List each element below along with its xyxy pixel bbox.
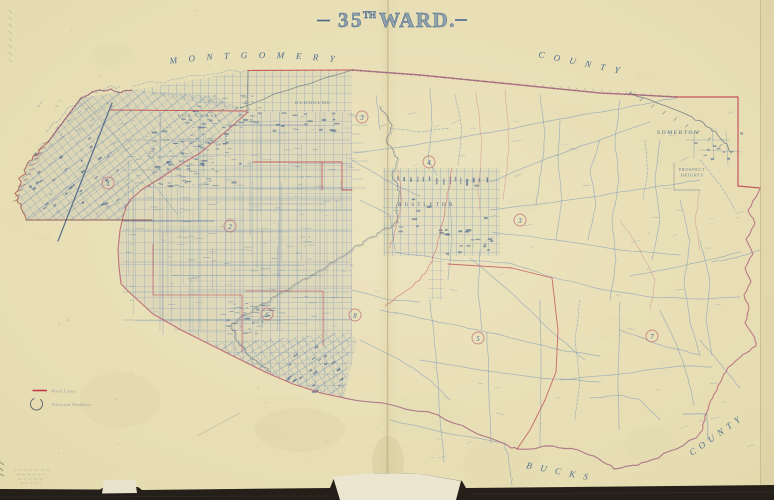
svg-text:SOMERTON: SOMERTON xyxy=(657,130,700,136)
svg-text:Ward Lines: Ward Lines xyxy=(51,389,76,394)
svg-text:TH: TH xyxy=(363,10,376,20)
svg-text:5: 5 xyxy=(476,335,480,343)
svg-text:8: 8 xyxy=(353,312,357,320)
svg-text:7: 7 xyxy=(650,333,654,341)
svg-text:FOX CHASE: FOX CHASE xyxy=(178,114,219,119)
svg-text:3: 3 xyxy=(359,114,364,122)
svg-text:1: 1 xyxy=(106,180,110,188)
svg-text:2: 2 xyxy=(228,223,232,231)
svg-text:3: 3 xyxy=(517,217,522,225)
svg-text:HEIGHTS: HEIGHTS xyxy=(681,173,704,178)
svg-text:BURHOLME: BURHOLME xyxy=(295,101,331,106)
svg-text:4: 4 xyxy=(427,159,431,167)
svg-text:WARD.: WARD. xyxy=(379,8,456,32)
svg-text:6: 6 xyxy=(265,311,269,319)
svg-text:BUSTLETON: BUSTLETON xyxy=(398,202,455,208)
svg-text:Division Numbers: Division Numbers xyxy=(52,402,92,407)
svg-text:PROSPECT: PROSPECT xyxy=(679,167,705,172)
svg-text:35: 35 xyxy=(338,8,364,32)
